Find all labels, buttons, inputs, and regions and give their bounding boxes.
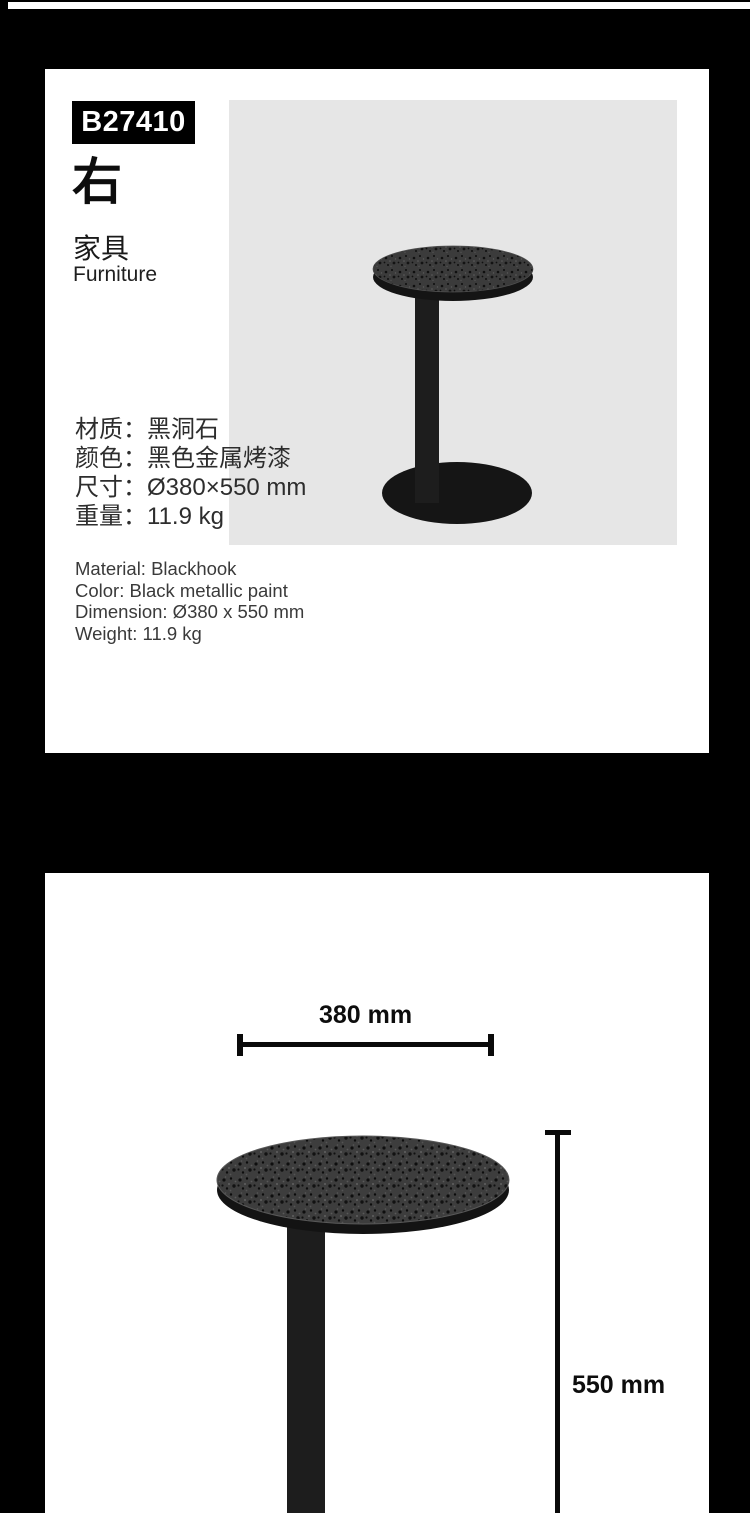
- width-dim-bar: [241, 1042, 490, 1047]
- variant-title: 右: [72, 155, 122, 210]
- sku-badge: B27410: [72, 101, 195, 144]
- product-spec-card: B27410 右 家具 Furniture 材质：黑洞石 颜色：黑色金属烤漆 尺…: [45, 69, 709, 753]
- page-top-edge: [0, 2, 750, 9]
- specs-zh: 材质：黑洞石 颜色：黑色金属烤漆 尺寸：Ø380×550 mm 重量：11.9 …: [75, 415, 306, 531]
- dimension-photo: [205, 1128, 515, 1513]
- spec-material-zh: 材质：黑洞石: [75, 415, 306, 444]
- spec-weight-en: Weight: 11.9 kg: [75, 623, 304, 645]
- spec-color-en: Color: Black metallic paint: [75, 580, 304, 602]
- specs-en: Material: Blackhook Color: Black metalli…: [75, 558, 304, 644]
- category-label-en: Furniture: [73, 263, 157, 287]
- category-label-zh: 家具: [73, 227, 129, 267]
- height-dimension-label: 550 mm: [572, 1371, 665, 1400]
- width-dimension-label: 380 mm: [237, 1001, 494, 1030]
- spec-color-zh: 颜色：黑色金属烤漆: [75, 444, 306, 473]
- height-dimension-line: [555, 1133, 560, 1513]
- spec-material-en: Material: Blackhook: [75, 558, 304, 580]
- dimension-diagram-card: 380 mm 550 mm: [45, 873, 709, 1513]
- width-dimension-line: [237, 1034, 494, 1056]
- spec-dimension-zh: 尺寸：Ø380×550 mm: [75, 473, 306, 502]
- pedestal-table-dimension-image: [205, 1128, 515, 1513]
- width-dim-right-tick: [488, 1034, 494, 1056]
- spec-weight-zh: 重量：11.9 kg: [75, 502, 306, 531]
- spec-dimension-en: Dimension: Ø380 x 550 mm: [75, 601, 304, 623]
